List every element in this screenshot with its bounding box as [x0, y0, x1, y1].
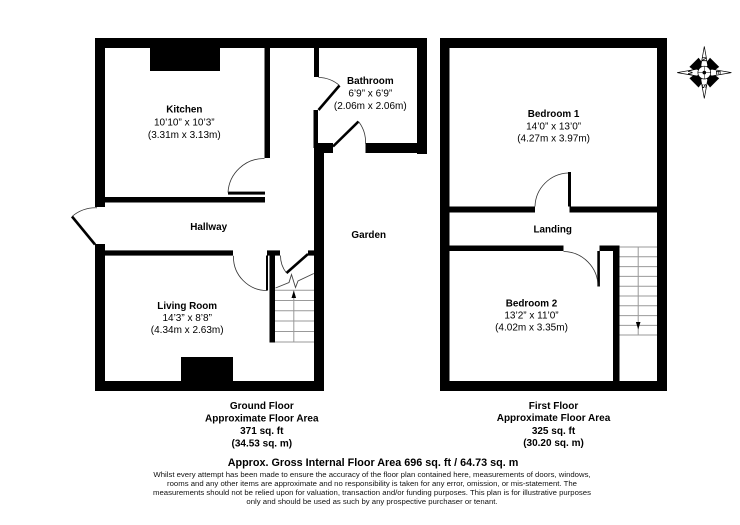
svg-text:(3.31m x 3.13m): (3.31m x 3.13m) — [148, 130, 221, 141]
svg-text:(4.34m x 2.63m): (4.34m x 2.63m) — [151, 325, 224, 336]
svg-text:Approximate Floor Area: Approximate Floor Area — [205, 413, 319, 424]
svg-text:rooms and any other items are: rooms and any other items are approximat… — [167, 479, 577, 488]
svg-text:(4.27m x 3.97m): (4.27m x 3.97m) — [517, 134, 590, 145]
svg-text:N: N — [700, 57, 707, 62]
svg-text:Approximate Floor Area: Approximate Floor Area — [497, 413, 611, 424]
svg-text:S: S — [700, 84, 707, 89]
svg-text:(34.53 sq. m): (34.53 sq. m) — [232, 438, 293, 449]
svg-text:W: W — [686, 70, 693, 77]
svg-text:13’2” x 11’0”: 13’2” x 11’0” — [504, 311, 558, 322]
svg-text:325 sq. ft: 325 sq. ft — [532, 426, 576, 437]
svg-text:Bedroom 2: Bedroom 2 — [506, 299, 558, 310]
svg-text:6’9” x 6’9”: 6’9” x 6’9” — [348, 89, 392, 100]
svg-text:First Floor: First Floor — [529, 401, 579, 412]
svg-text:(30.20 sq. m): (30.20 sq. m) — [523, 438, 584, 449]
svg-text:(4.02m x 3.35m): (4.02m x 3.35m) — [495, 323, 568, 334]
svg-text:measurements should not be rel: measurements should not be relied upon f… — [153, 488, 591, 497]
svg-text:Approx. Gross Internal Floor A: Approx. Gross Internal Floor Area 696 sq… — [228, 457, 519, 469]
svg-text:(2.06m x 2.06m): (2.06m x 2.06m) — [334, 101, 407, 112]
svg-text:14’3” x 8’8”: 14’3” x 8’8” — [162, 313, 211, 324]
svg-text:Bathroom: Bathroom — [347, 76, 394, 87]
svg-text:Whilst every attempt has been: Whilst every attempt has been made to en… — [153, 470, 590, 479]
svg-text:only and should be used as suc: only and should be used as such by any p… — [246, 497, 497, 506]
svg-text:14’0” x 13’0”: 14’0” x 13’0” — [526, 122, 581, 133]
svg-text:E: E — [714, 70, 721, 75]
svg-text:Bedroom 1: Bedroom 1 — [528, 109, 580, 120]
svg-text:Garden: Garden — [351, 230, 386, 241]
svg-text:Hallway: Hallway — [190, 222, 227, 233]
svg-text:Ground Floor: Ground Floor — [230, 401, 294, 412]
svg-text:10’10” x 10’3”: 10’10” x 10’3” — [154, 117, 215, 128]
svg-text:Living Room: Living Room — [157, 301, 217, 312]
svg-text:Landing: Landing — [533, 224, 571, 235]
svg-text:371 sq. ft: 371 sq. ft — [240, 426, 284, 437]
svg-text:Kitchen: Kitchen — [166, 105, 202, 116]
